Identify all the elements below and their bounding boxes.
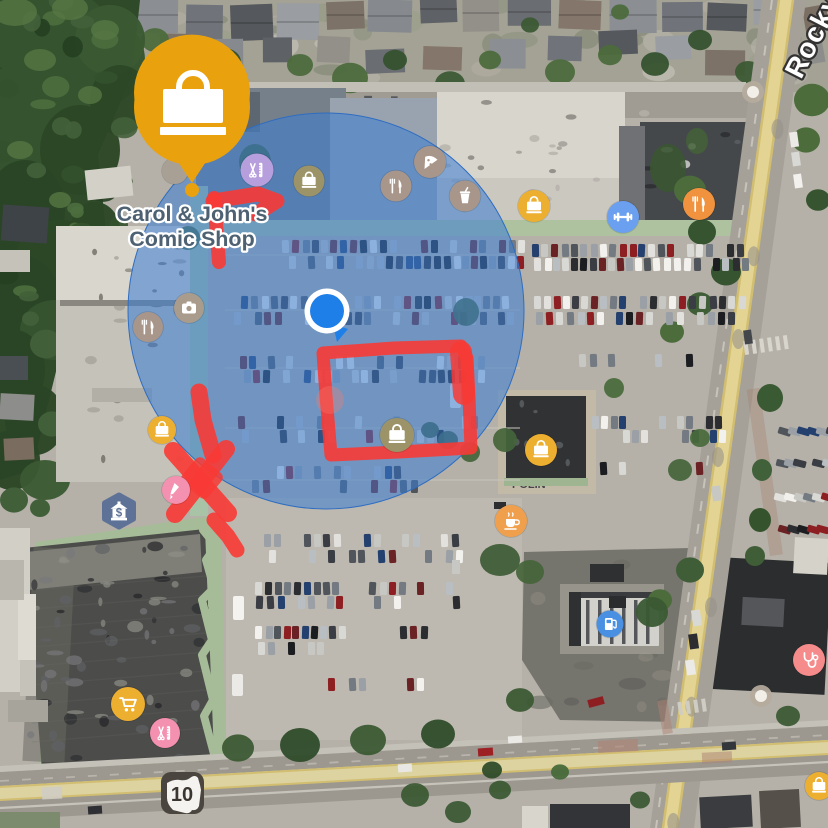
svg-text:$: $ — [116, 508, 123, 520]
svg-text:Carol & John's: Carol & John's — [117, 202, 268, 226]
svg-text:10: 10 — [171, 784, 193, 806]
svg-text:Comic Shop: Comic Shop — [129, 227, 254, 251]
